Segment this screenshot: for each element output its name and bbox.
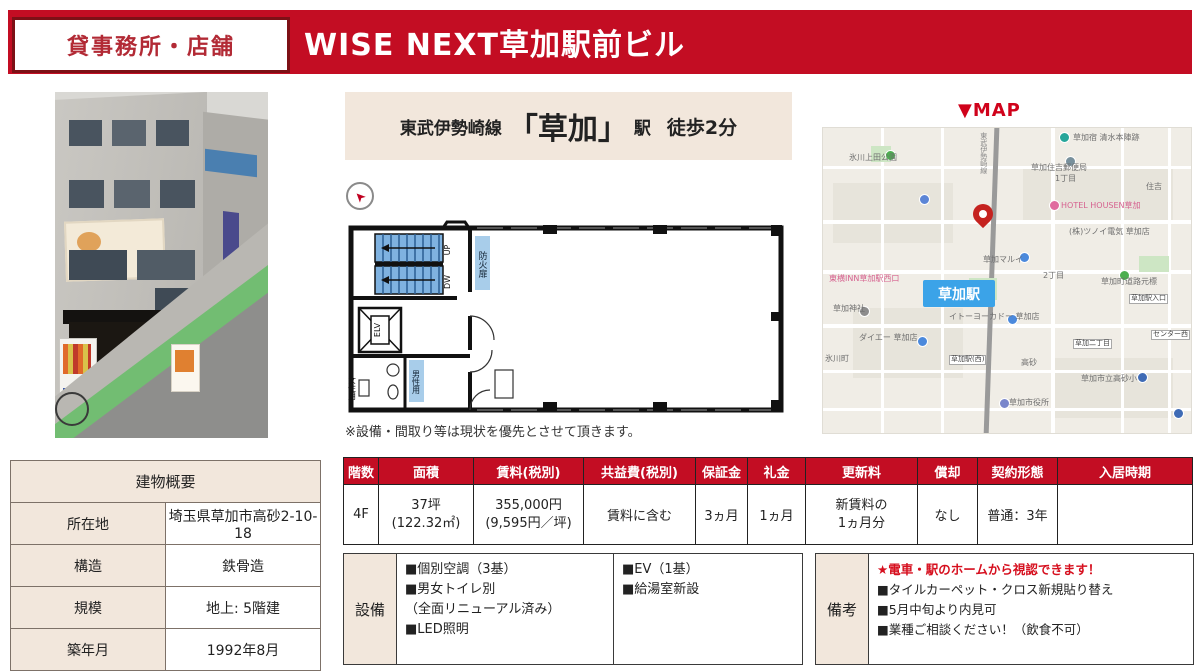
col-header: 共益費(税別) <box>584 458 696 485</box>
col-header: 入居時期 <box>1058 458 1193 485</box>
unit-table: 階数 面積 賃料(税別) 共益費(税別) 保証金 礼金 更新料 償却 契約形態 … <box>343 457 1193 545</box>
common-fee-value: 賃料に含む <box>584 485 696 545</box>
map-label: 高砂 <box>1021 359 1037 368</box>
map-label: 住吉 <box>1146 183 1162 192</box>
map-park <box>1139 256 1169 272</box>
col-header: 保証金 <box>696 458 748 485</box>
map-station-badge: 草加駅 <box>923 280 995 307</box>
table-row: 構造 鉄骨造 <box>11 545 321 587</box>
building-overview-table: 建物概要 所在地 埼玉県草加市高砂2-10-18 構造 鉄骨造 規模 地上: 5… <box>10 460 321 671</box>
map-label: 東横INN草加駅西口 <box>829 275 899 284</box>
table-row: 所在地 埼玉県草加市高砂2-10-18 <box>11 503 321 545</box>
contract-value: 普通：3年 <box>978 485 1058 545</box>
col-header: 階数 <box>344 458 379 485</box>
remarks-box: 備考 ★電車・駅のホームから視認できます！ ■タイルカーペット・クロス新規貼り替… <box>815 553 1194 665</box>
map-label: 草加市役所 <box>1009 399 1049 408</box>
map-pin-store <box>917 336 928 347</box>
map-label: ダイエー 草加店 <box>859 334 917 343</box>
map-label: (株)ツノイ電気 草加店 <box>1069 228 1150 237</box>
photo-window <box>69 180 195 208</box>
row-label: 規模 <box>11 587 166 629</box>
map-road <box>1168 128 1171 433</box>
map-label: 2丁目 <box>1043 272 1064 281</box>
map-label: 草加駅入口 <box>1129 294 1168 304</box>
mens-toilet-label: 男性用 <box>407 361 425 403</box>
station-name: 「草加」 <box>508 104 628 148</box>
col-header: 礼金 <box>748 458 806 485</box>
header-bar: 貸事務所・店舗 WISE NEXT草加駅前ビル <box>8 10 1192 74</box>
photo-window <box>69 250 195 280</box>
map-label: 草加マルイ <box>983 256 1023 265</box>
map-label: HOTEL HOUSEN草加 <box>1061 202 1141 211</box>
category-label: 貸事務所・店舗 <box>67 29 235 61</box>
row-label: 築年月 <box>11 629 166 671</box>
remarks-item: ■業種ご相談ください！（飲食不可） <box>877 620 1113 640</box>
rent-value: 355,000円 (9,595円／坪) <box>474 485 584 545</box>
photo-vending-items <box>63 344 91 374</box>
map-label: 氷川町 <box>825 355 849 364</box>
map-road <box>823 370 1191 373</box>
col-header: 賃料(税別) <box>474 458 584 485</box>
move-in-value <box>1058 485 1193 545</box>
map-title: ▼MAP <box>958 100 1021 121</box>
map-label: 氷川上田公園 <box>849 154 897 163</box>
stairs-down-label: DW <box>443 275 452 289</box>
row-value: 地上: 5階建 <box>166 587 321 629</box>
map-pin-school <box>1137 372 1148 383</box>
remarks-item: ■タイルカーペット・クロス新規貼り替え <box>877 580 1113 600</box>
deposit-value: 3ヵ月 <box>696 485 748 545</box>
walk-time: 徒歩2分 <box>667 113 737 140</box>
map-label: 草加住吉郵便局 <box>1031 164 1087 173</box>
map-pin-landmark <box>1059 132 1070 143</box>
building-photo <box>55 92 268 438</box>
col-header: 契約形態 <box>978 458 1058 485</box>
map-label: 草加二丁目 <box>1073 339 1112 349</box>
facility-item: ■男女トイレ別 <box>405 580 605 600</box>
map-label: 草加宿 清水本陣跡 <box>1073 134 1140 143</box>
floor-value: 4F <box>344 485 379 545</box>
stairs-up-label: UP <box>443 244 452 255</box>
building-table-title: 建物概要 <box>11 461 321 503</box>
col-header: 更新料 <box>806 458 918 485</box>
fire-door-label: 防火扉 <box>473 238 491 290</box>
unit-table-value-row: 4F 37坪 (122.32㎡) 355,000円 (9,595円／坪) 賃料に… <box>344 485 1193 545</box>
facilities-col1: ■個別空調（3基） ■男女トイレ別 （全面リニューアル済み） ■LED照明 <box>397 554 614 664</box>
compass-icon: ➤ <box>346 182 374 210</box>
map-block <box>1023 168 1173 223</box>
facility-item: （全面リニューアル済み） <box>405 600 605 620</box>
map-label: 草加町道路元標 <box>1101 278 1157 287</box>
elevator-label: ELV <box>373 322 382 337</box>
womens-toilet-label: 女性用 <box>346 366 358 410</box>
map-label: 1丁目 <box>1055 175 1076 184</box>
map-label: 草加市立高砂小 <box>1081 375 1137 384</box>
map-block <box>833 183 953 243</box>
map-pin-school <box>1173 408 1184 419</box>
amortization-value: なし <box>918 485 978 545</box>
photo-standing-sign-art <box>175 350 194 372</box>
facility-item: ■EV（1基） <box>622 560 794 580</box>
row-label: 構造 <box>11 545 166 587</box>
map-label: センター西 <box>1151 330 1190 340</box>
facilities-col2: ■EV（1基） ■給湯室新設 <box>614 554 802 664</box>
category-box: 貸事務所・店舗 <box>12 17 290 73</box>
remarks-item: ■5月中旬より内見可 <box>877 600 1113 620</box>
area-value: 37坪 (122.32㎡) <box>379 485 474 545</box>
map-pin-parking <box>919 194 930 205</box>
remarks-content: ★電車・駅のホームから視認できます！ ■タイルカーペット・クロス新規貼り替え ■… <box>869 554 1121 664</box>
map-label-railline: 東武伊勢崎線 <box>979 132 987 174</box>
station-suffix: 駅 <box>634 114 651 139</box>
map: 草加駅 氷川上田公園 草加宿 清水本陣跡 草加住吉郵便局 1丁目 住吉 HOTE… <box>822 127 1192 434</box>
map-label: 草加駅(西) <box>949 355 986 365</box>
col-header: 面積 <box>379 458 474 485</box>
map-road <box>823 166 1191 169</box>
renewal-value: 新賃料の 1ヵ月分 <box>806 485 918 545</box>
rail-line: 東武伊勢崎線 <box>400 114 502 139</box>
map-block <box>853 308 963 378</box>
map-road <box>823 408 1191 411</box>
floor-plan-note: ※設備・間取り等は現状を優先とさせて頂きます。 <box>345 421 641 440</box>
facilities-box: 設備 ■個別空調（3基） ■男女トイレ別 （全面リニューアル済み） ■LED照明… <box>343 553 803 665</box>
row-value: 鉄骨造 <box>166 545 321 587</box>
map-label: 草加神社 <box>833 305 865 314</box>
key-money-value: 1ヵ月 <box>748 485 806 545</box>
map-road <box>823 324 1191 328</box>
map-label: イトーヨーカドー 草加店 <box>949 313 1040 322</box>
table-row: 規模 地上: 5階建 <box>11 587 321 629</box>
photo-window <box>69 120 189 146</box>
remarks-label: 備考 <box>816 554 869 664</box>
row-value: 1992年8月 <box>166 629 321 671</box>
facility-item: ■LED照明 <box>405 620 605 640</box>
map-pin-hotel <box>1049 200 1060 211</box>
table-row: 築年月 1992年8月 <box>11 629 321 671</box>
access-box: 東武伊勢崎線 「草加」 駅 徒歩2分 <box>345 92 792 160</box>
row-label: 所在地 <box>11 503 166 545</box>
facility-item: ■給湯室新設 <box>622 580 794 600</box>
map-road <box>823 220 1191 224</box>
photo-bicycle <box>55 392 89 426</box>
row-value: 埼玉県草加市高砂2-10-18 <box>166 503 321 545</box>
remarks-highlight: ★電車・駅のホームから視認できます！ <box>877 560 1113 580</box>
facilities-label: 設備 <box>344 554 397 664</box>
floor-plan: UP DW ELV 防火扉 男性用 女性用 <box>347 220 785 416</box>
page-title: WISE NEXT草加駅前ビル <box>304 10 685 74</box>
facility-item: ■個別空調（3基） <box>405 560 605 580</box>
unit-table-header-row: 階数 面積 賃料(税別) 共益費(税別) 保証金 礼金 更新料 償却 契約形態 … <box>344 458 1193 485</box>
col-header: 償却 <box>918 458 978 485</box>
